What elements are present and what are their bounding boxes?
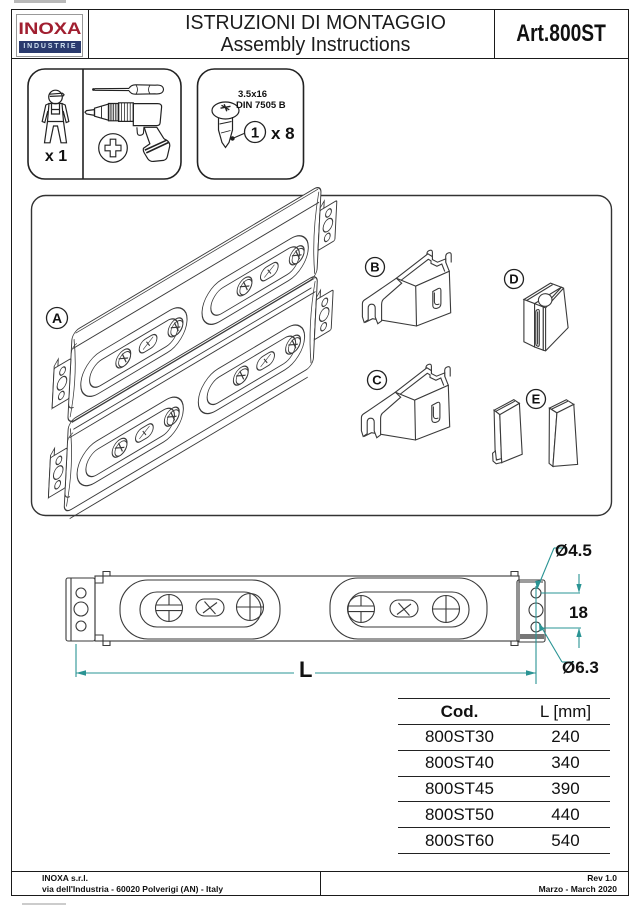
svg-text:A: A [52,310,62,326]
svg-text:B: B [370,260,379,275]
svg-text:x 8: x 8 [271,124,295,143]
svg-text:18: 18 [569,603,588,622]
svg-text:x 1: x 1 [45,148,67,165]
svg-text:Ø6.3: Ø6.3 [562,658,599,677]
svg-text:L: L [299,657,312,682]
svg-text:D: D [509,272,518,287]
svg-text:C: C [372,373,382,388]
svg-text:DIN 7505 B: DIN 7505 B [236,100,286,111]
svg-text:3.5x16: 3.5x16 [238,89,267,100]
svg-text:Ø4.5: Ø4.5 [555,541,592,560]
svg-text:E: E [532,392,541,407]
svg-text:1: 1 [251,124,259,141]
